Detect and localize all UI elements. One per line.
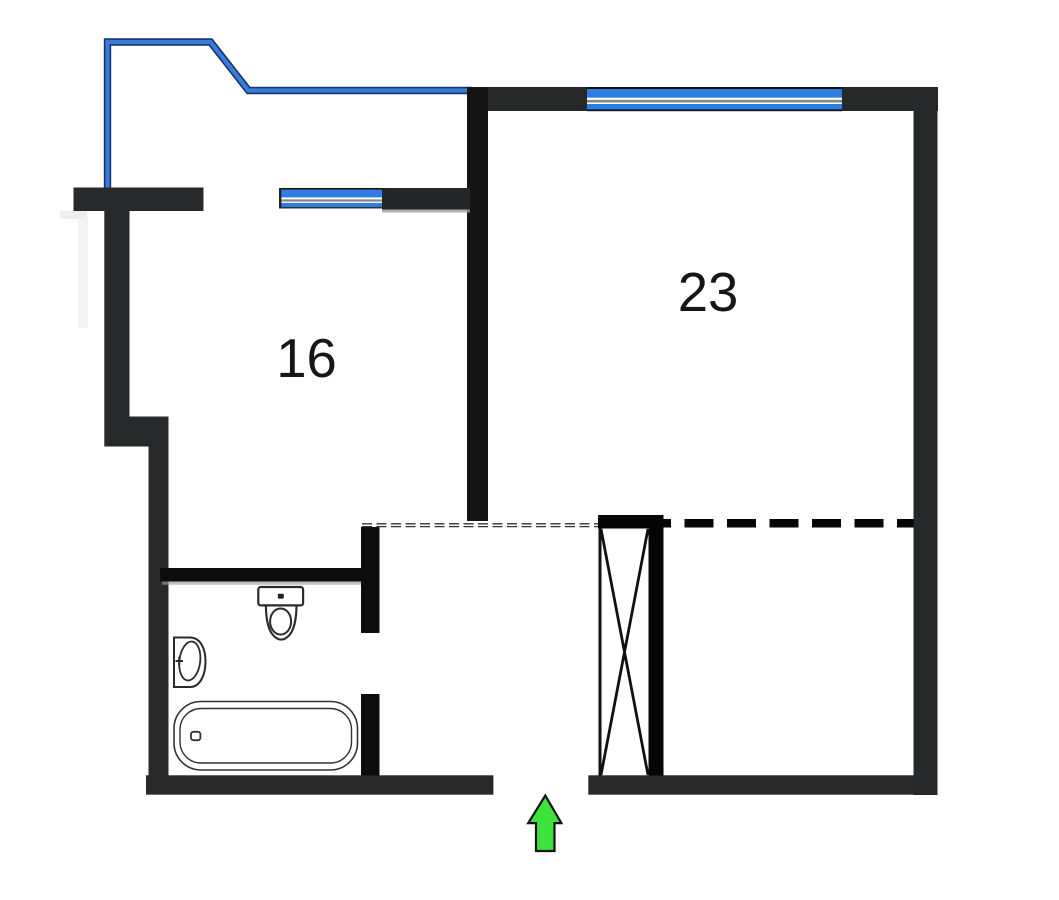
- svg-text:23: 23: [678, 262, 739, 323]
- svg-text:16: 16: [276, 328, 337, 389]
